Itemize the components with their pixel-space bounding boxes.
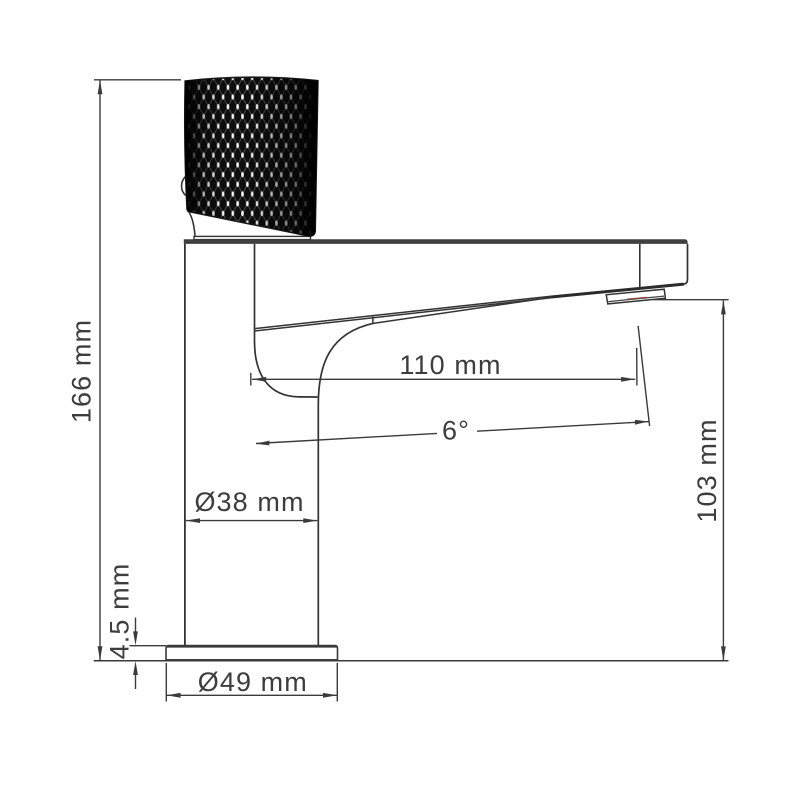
svg-text:166 mm: 166 mm (67, 319, 97, 423)
svg-text:110 mm: 110 mm (399, 350, 501, 380)
svg-text:4.5 mm: 4.5 mm (105, 563, 135, 660)
svg-text:Ø49 mm: Ø49 mm (198, 667, 308, 697)
svg-text:6°: 6° (442, 416, 470, 446)
svg-text:103 mm: 103 mm (692, 418, 722, 522)
svg-text:Ø38 mm: Ø38 mm (194, 487, 304, 517)
